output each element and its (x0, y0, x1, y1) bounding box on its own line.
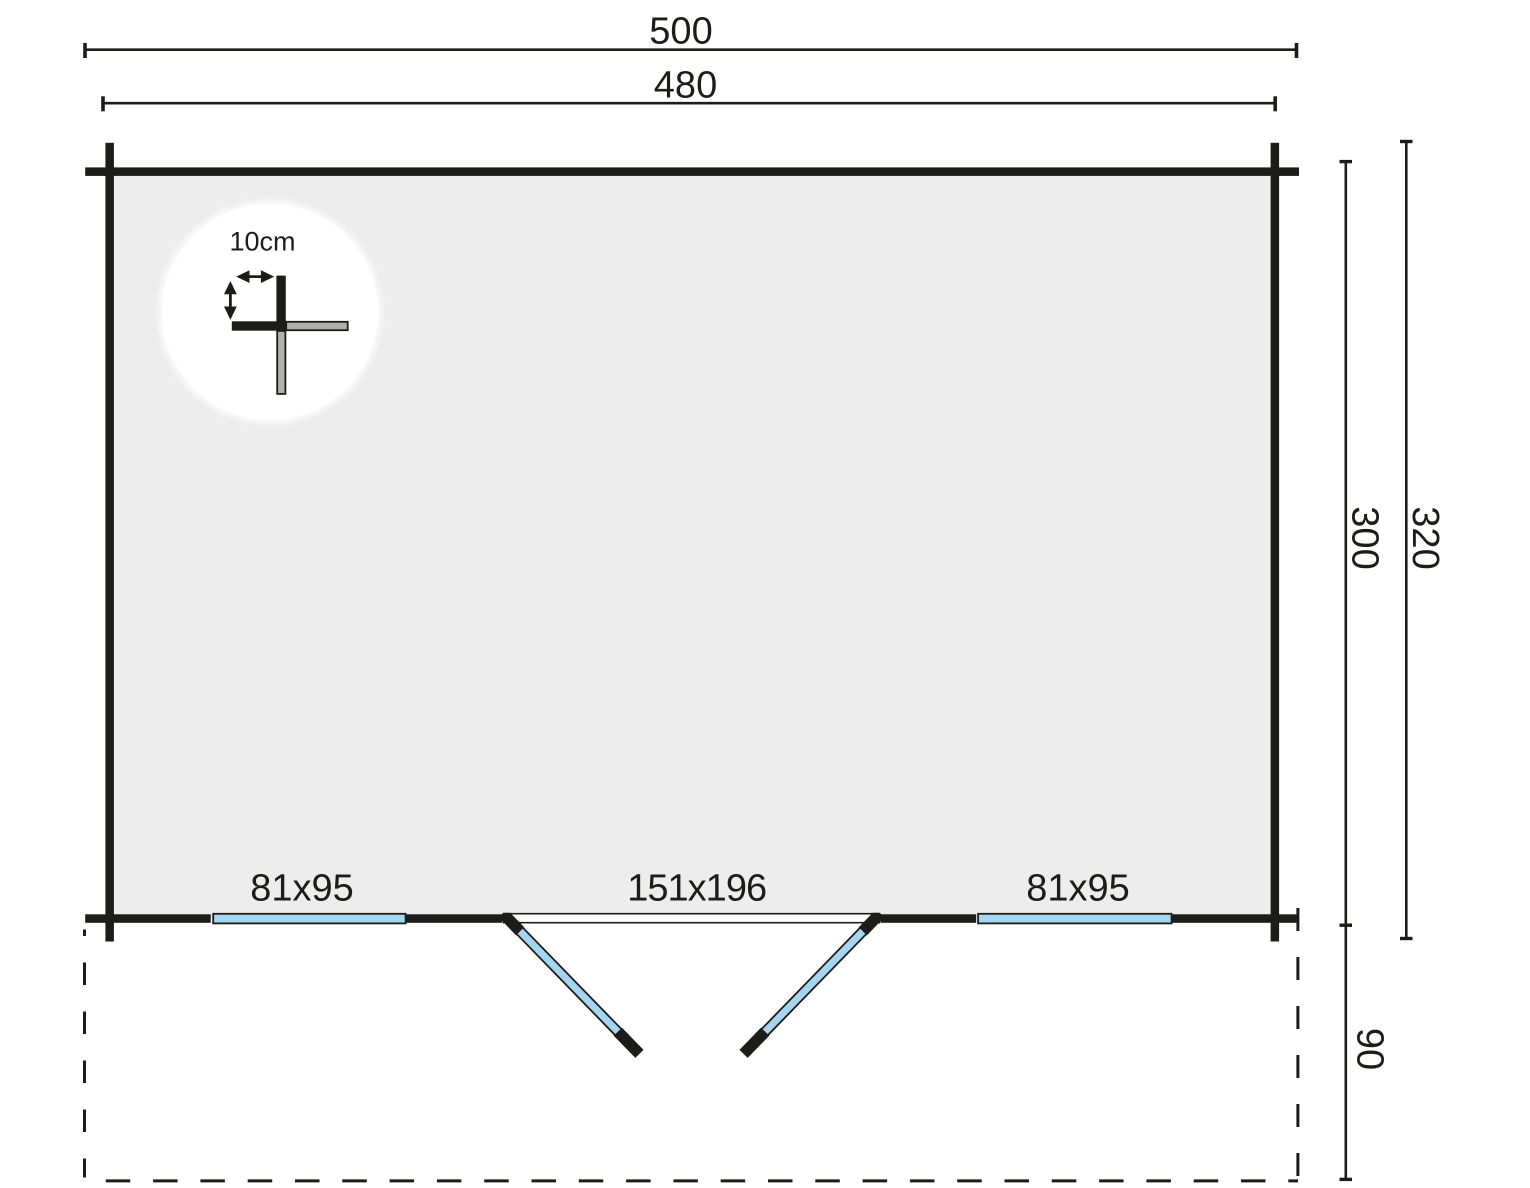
svg-text:500: 500 (649, 11, 712, 53)
svg-text:480: 480 (654, 64, 717, 106)
svg-text:10cm: 10cm (229, 227, 295, 257)
svg-text:81x95: 81x95 (1026, 867, 1130, 909)
svg-text:151x196: 151x196 (627, 867, 766, 909)
svg-text:300: 300 (1343, 506, 1385, 569)
svg-text:81x95: 81x95 (250, 867, 354, 909)
svg-text:90: 90 (1349, 1028, 1391, 1070)
svg-text:320: 320 (1404, 506, 1446, 569)
